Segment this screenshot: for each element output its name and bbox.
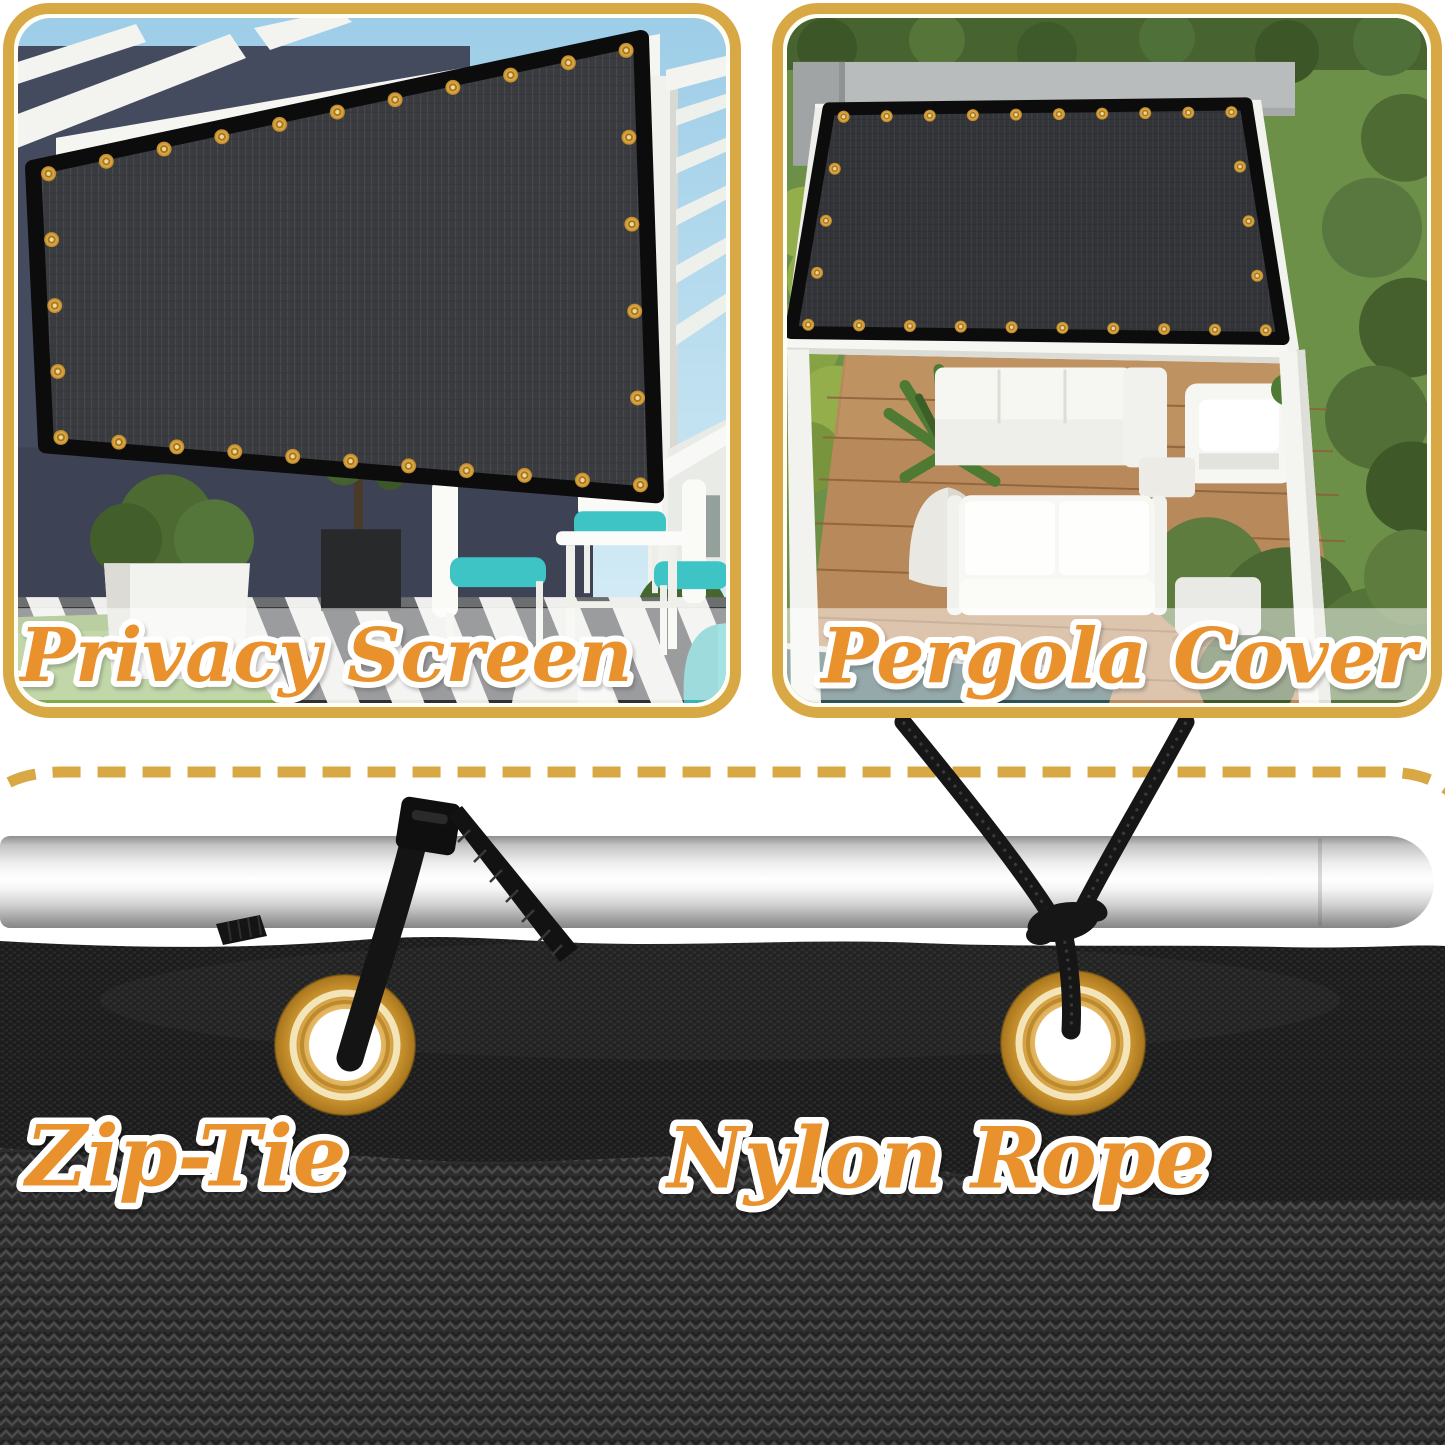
- pergola-cover-panel: Pergola Cover: [772, 3, 1442, 718]
- privacy-screen-graphic: Privacy Screen: [18, 18, 726, 703]
- privacy-screen-photo: Privacy Screen: [18, 18, 726, 703]
- zip-tie-label: Zip-Tie: [23, 1107, 347, 1206]
- privacy-screen-panel: Privacy Screen: [3, 3, 741, 718]
- attachment-demo: Zip-Tie Nylon Rope: [0, 718, 1445, 1445]
- product-image: Privacy Screen: [0, 0, 1445, 1445]
- pergola-cover-graphic: Pergola Cover: [787, 18, 1427, 703]
- privacy-screen-label: Privacy Screen: [18, 613, 632, 699]
- nylon-rope-label: Nylon Rope: [664, 1109, 1209, 1208]
- dashed-border: [0, 772, 1445, 858]
- mesh-cover: [791, 104, 1283, 339]
- pergola-cover-label: Pergola Cover: [819, 612, 1422, 701]
- pergola-cover-photo: Pergola Cover: [787, 18, 1427, 703]
